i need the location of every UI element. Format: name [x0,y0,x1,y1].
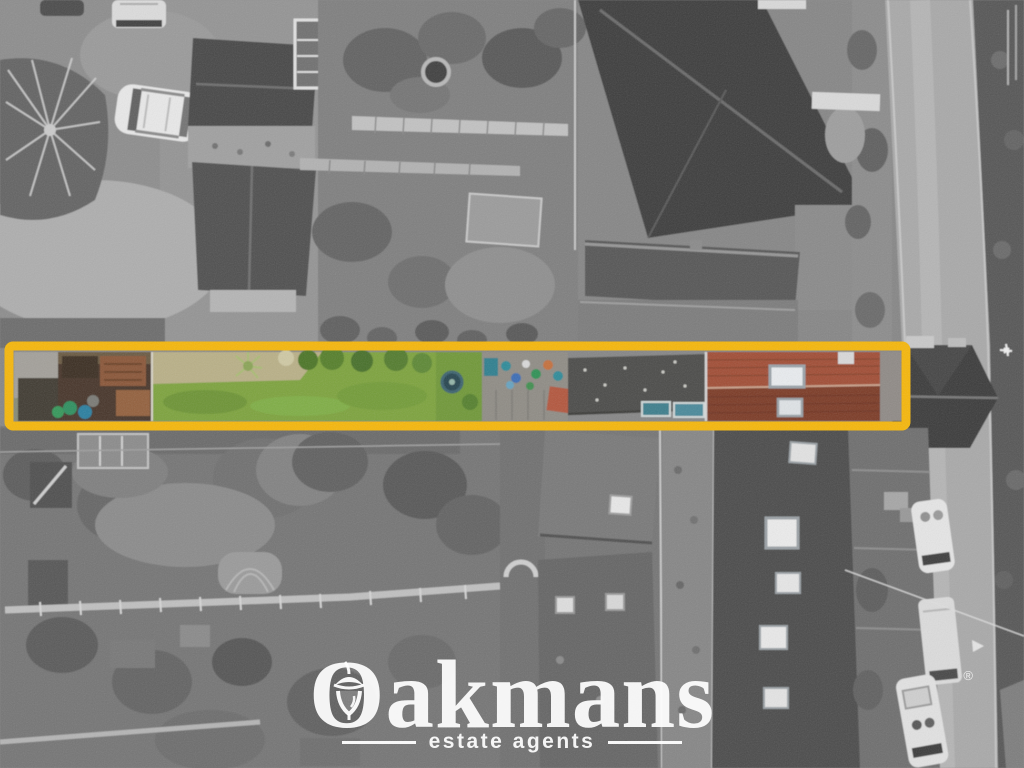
listing-photo-frame: Oakmans ® estate agents [0,0,1024,768]
photo-grain-overlay [0,0,1024,768]
aerial-photo [0,0,1024,768]
